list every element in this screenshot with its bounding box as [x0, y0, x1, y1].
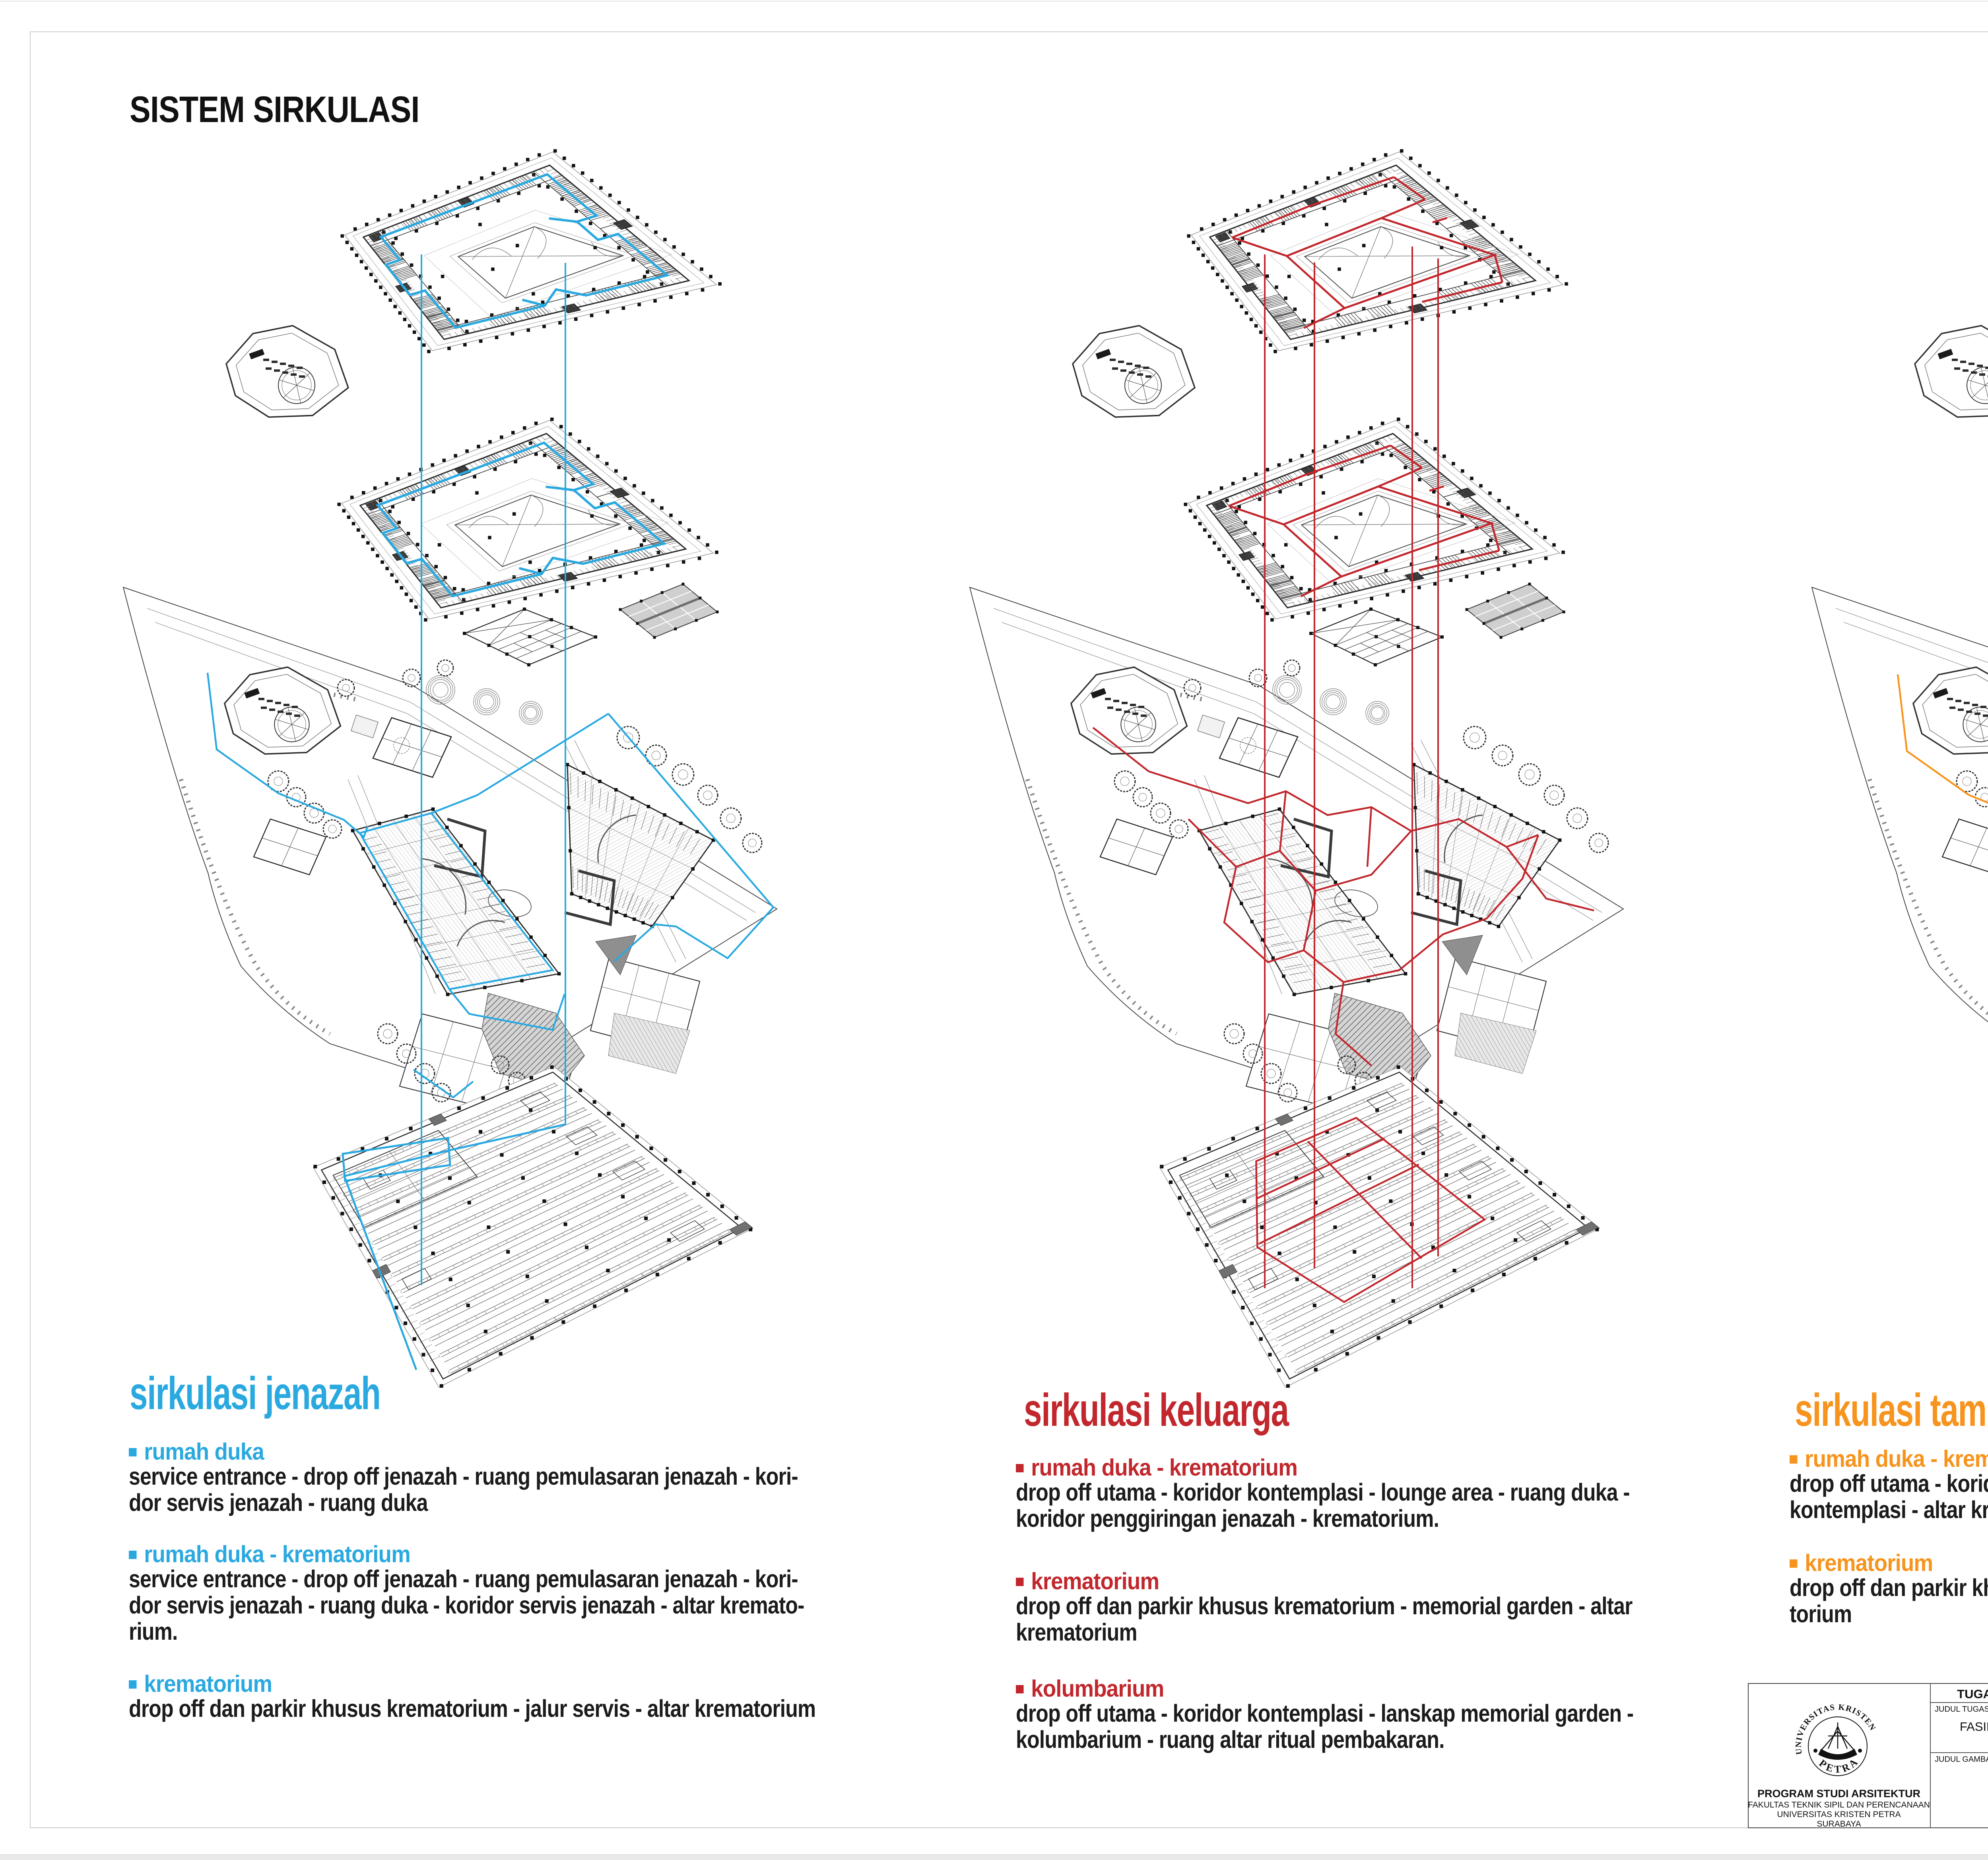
svg-text:UNIVERSITAS KRISTEN: UNIVERSITAS KRISTEN — [1794, 1703, 1878, 1755]
